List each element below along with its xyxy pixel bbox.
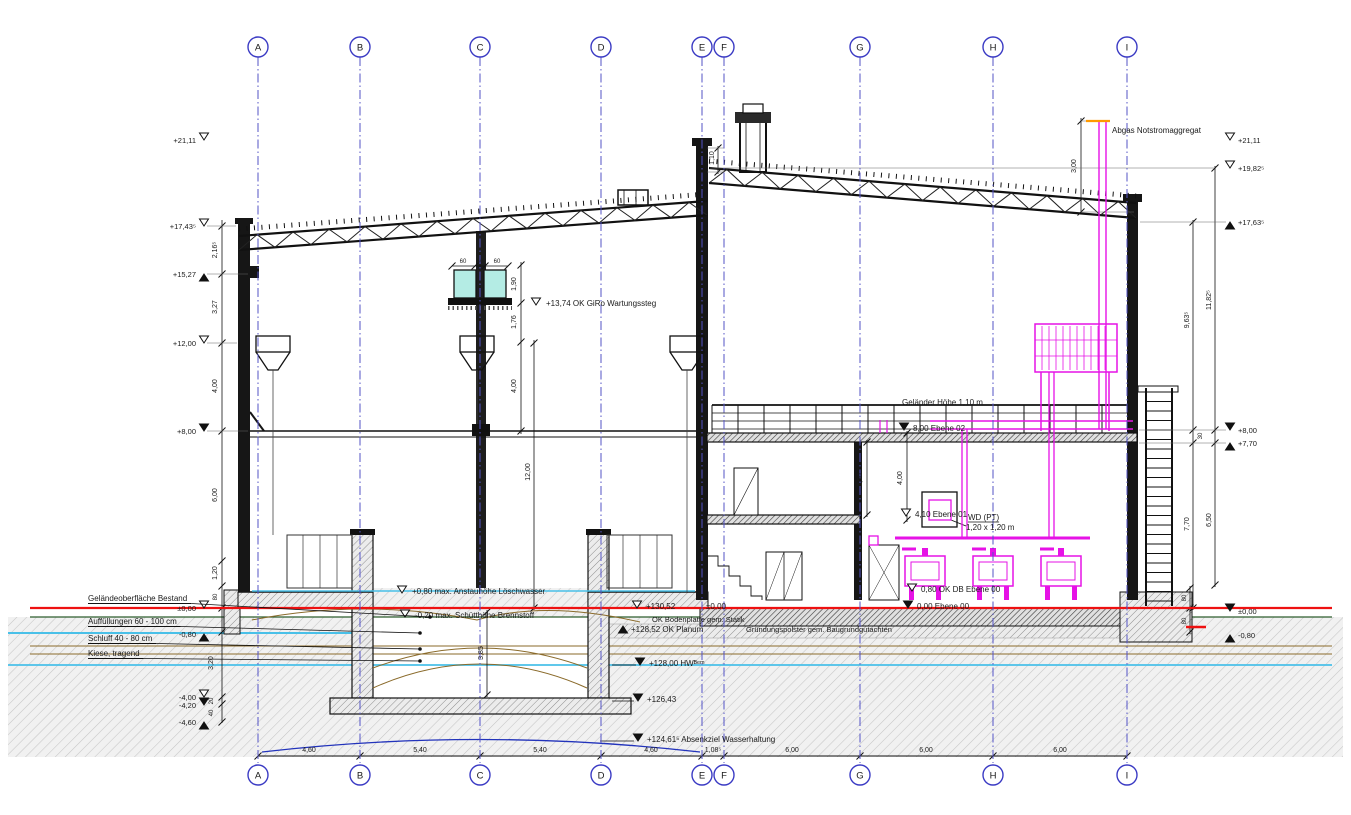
- axis-letter-C: C: [477, 771, 484, 782]
- level-marker: [908, 584, 917, 591]
- axis-letter-B: B: [357, 771, 363, 782]
- bottom-dim-label: 6,00: [919, 747, 933, 754]
- annotation: +128,00 HWᴮᵉᵐ: [649, 659, 705, 668]
- level-marker: [902, 509, 911, 516]
- left-level-label: ±0,00: [177, 604, 196, 613]
- level-marker: [1226, 222, 1235, 229]
- annotation: WD (PT): [968, 513, 999, 522]
- bottom-dim-label: 5,40: [413, 747, 427, 754]
- left-dim-label: 3,20: [208, 656, 215, 670]
- hopper-box-cell: [454, 270, 476, 298]
- dim-label: 80: [1182, 594, 1188, 601]
- axis-letter-G: G: [856, 43, 863, 54]
- annotation: +124,61⁵ Absenkziel Wasserhaltung: [647, 735, 775, 744]
- annotation: 1,20 x 1,20 m: [966, 523, 1015, 532]
- annotation: 0,00 Ebene 00: [917, 602, 970, 611]
- level-marker: [200, 424, 209, 431]
- left-dim-label: 4,00: [212, 379, 219, 393]
- dim-label: 80: [1182, 617, 1188, 624]
- axis-letter-B: B: [357, 43, 363, 54]
- dim-label: 30: [1198, 432, 1204, 439]
- axis-letter-D: D: [598, 771, 605, 782]
- dim-label: 12,00: [525, 463, 532, 481]
- dim-label: 3,85: [478, 646, 485, 660]
- hopper-box-cell: [484, 270, 506, 298]
- level-marker: [1226, 443, 1235, 450]
- dim-label: 4,00: [897, 471, 904, 485]
- axis-letter-A: A: [255, 43, 262, 54]
- annotation: Geländer Höhe 1,10 m: [902, 398, 983, 407]
- left-level-label: -0,80: [179, 630, 196, 639]
- annotation: Abgas Notstromaggregat: [1112, 126, 1202, 135]
- mezzanine-slab-ebene02: [707, 433, 1137, 442]
- right-level-label: +21,11: [1238, 136, 1261, 145]
- dim-label: 1,76: [511, 315, 518, 329]
- leader-dot: [418, 659, 422, 663]
- axis-letter-H: H: [990, 771, 997, 782]
- drawing-canvas: AABBCCDDEEFFGGHHII 4,605,405,404,601,08⁵…: [0, 0, 1351, 815]
- left-level-label: +17,43⁵: [170, 222, 196, 231]
- level-marker: [200, 219, 209, 226]
- wall-axis-a: [238, 222, 250, 592]
- axis-letter-G: G: [856, 771, 863, 782]
- level-marker: [200, 133, 209, 140]
- annotation: Gründungspolster gem. Baugrundgutachten: [746, 625, 892, 634]
- dim-label: 11,82⁵: [1206, 290, 1213, 310]
- annotation: -0,20 max. Schütthöhe Brennstoff: [415, 611, 535, 620]
- roof-truss-web: [239, 202, 707, 250]
- ground-label: Auffüllungen 60 - 100 cm: [88, 617, 177, 626]
- axis-letter-D: D: [598, 43, 605, 54]
- ground-label: Kiese, tragend: [88, 649, 140, 658]
- left-dim-label: 1,20: [212, 566, 219, 580]
- bottom-dim-label: 1,08⁵: [705, 747, 722, 754]
- left-dim-label: 3,27: [212, 300, 219, 314]
- ground-label: Geländeoberfläche Bestand: [88, 594, 187, 603]
- leader-dot: [418, 631, 422, 635]
- left-dim-label: 2,16⁵: [212, 242, 219, 259]
- right-level-label: +8,00: [1238, 426, 1257, 435]
- annotation: +126,43: [647, 695, 677, 704]
- left-dim-label: 80: [213, 593, 219, 600]
- dim-label: 3,00: [1071, 159, 1078, 173]
- left-hall: [235, 190, 696, 622]
- machinery-frame: [607, 535, 672, 588]
- annotation: +130,52: [646, 602, 676, 611]
- left-dim-label: 20: [209, 697, 215, 704]
- left-level-label: +12,00: [173, 339, 196, 348]
- level-marker: [200, 274, 209, 281]
- dim-label: 1,10: [709, 151, 716, 165]
- wall-axis-i: [1127, 200, 1138, 600]
- left-level-label: +15,27: [173, 270, 196, 279]
- axis-letter-I: I: [1126, 771, 1129, 782]
- level-marker: [532, 298, 541, 305]
- machinery-frame: [287, 535, 352, 588]
- annotation: 4,10 Ebene 01: [915, 510, 968, 519]
- box-dim-label: 60: [494, 259, 501, 265]
- dim-label: 7,70: [1184, 517, 1191, 531]
- annotation: OK Bodenplatte gem. Statik: [652, 615, 745, 624]
- roof-deck-studs: [239, 194, 707, 229]
- level-marker: [1226, 133, 1235, 140]
- axis-letter-F: F: [721, 43, 727, 54]
- bottom-dim-label: 5,40: [533, 747, 547, 754]
- level-marker: [1226, 161, 1235, 168]
- axis-letter-C: C: [477, 43, 484, 54]
- bottom-dim-label: 4,60: [644, 747, 658, 754]
- left-level-label: +8,00: [177, 427, 196, 436]
- bottom-dim-label: 6,00: [1053, 747, 1067, 754]
- dim-label: 1,90: [511, 277, 518, 291]
- dim-label: 3,90: [857, 473, 864, 487]
- left-level-label: -4,20: [179, 701, 196, 710]
- axis-letter-E: E: [699, 43, 705, 54]
- right-level-label: +19,82⁵: [1238, 164, 1264, 173]
- box-dim-label: 50: [477, 259, 484, 265]
- right-level-label: ±0,00: [1238, 607, 1257, 616]
- left-level-label: -4,60: [179, 718, 196, 727]
- annotation: +128,52 OK Planum: [631, 625, 704, 634]
- right-level-label: +17,63⁵: [1238, 218, 1264, 227]
- level-marker: [1226, 423, 1235, 430]
- annotation: ±0,00: [706, 602, 727, 611]
- axis-letter-A: A: [255, 771, 262, 782]
- fuel-hopper: [256, 336, 290, 352]
- left-dim-label: 6,00: [212, 488, 219, 502]
- annotation: +0,80 max. Anstauhöhe Löschwasser: [412, 587, 546, 596]
- right-level-label: +7,70: [1238, 439, 1257, 448]
- slab-ebene01: [707, 515, 860, 524]
- annotation: +13,74 OK GiRo Wartungssteg: [546, 299, 656, 308]
- axis-letter-E: E: [699, 771, 705, 782]
- valve: [869, 536, 878, 545]
- axis-letter-H: H: [990, 43, 997, 54]
- level-marker: [200, 336, 209, 343]
- bottom-dim-label: 6,00: [785, 747, 799, 754]
- leader-dot: [418, 647, 422, 651]
- right-level-label: -0,80: [1238, 631, 1255, 640]
- section-drawing-sheet: AABBCCDDEEFFGGHHII 4,605,405,404,601,08⁵…: [0, 0, 1351, 815]
- axis-letter-I: I: [1126, 43, 1129, 54]
- roof-truss-web: [709, 169, 1136, 218]
- roof-bottom-chord: [239, 215, 707, 250]
- left-dim-label: 40: [209, 709, 215, 716]
- dim-label: 9,63⁵: [1184, 312, 1191, 329]
- dim-label: 4,00: [511, 379, 518, 393]
- stair-steps: [707, 556, 762, 600]
- bottom-dim-label: 4,60: [302, 747, 316, 754]
- ground-label: Schluff 40 - 80 cm: [88, 634, 153, 643]
- annotation: 8,00 Ebene 02: [913, 424, 966, 433]
- dim-label: 6,50: [1206, 513, 1213, 527]
- left-level-label: +21,11: [173, 136, 196, 145]
- axis-letter-F: F: [721, 771, 727, 782]
- annotation: 0,80 OK DB Ebene 00: [921, 585, 1001, 594]
- box-dim-label: 60: [460, 259, 467, 265]
- leader-dot: [428, 615, 432, 619]
